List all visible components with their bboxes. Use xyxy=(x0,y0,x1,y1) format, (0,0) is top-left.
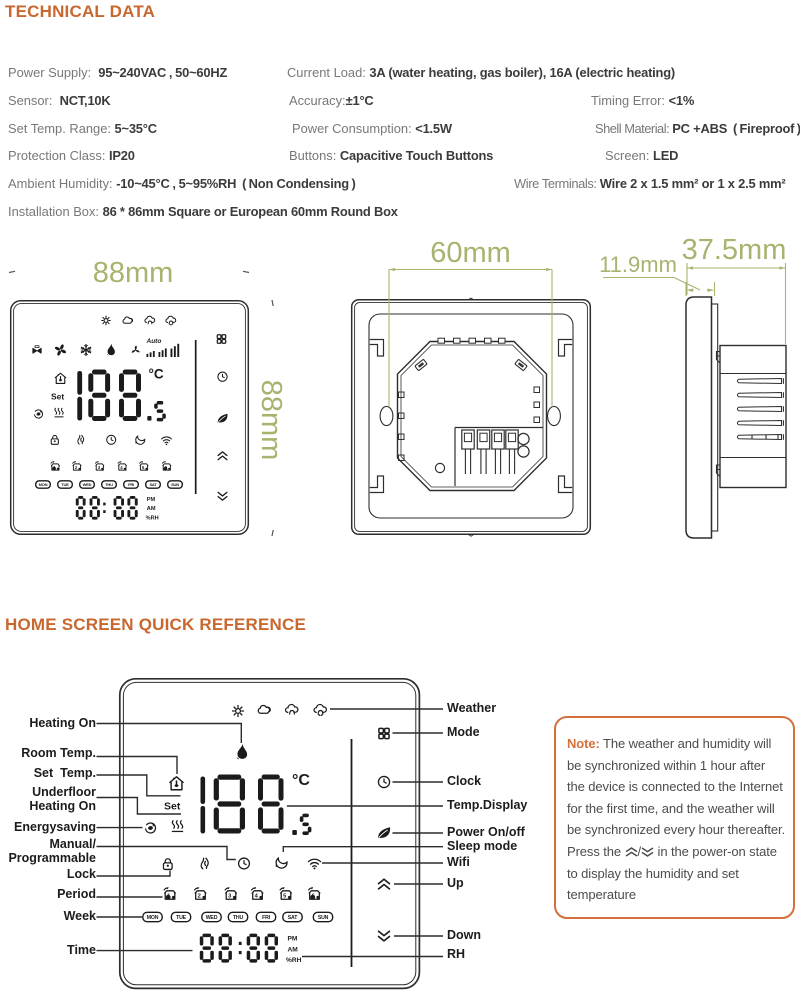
svg-text:88mm: 88mm xyxy=(255,380,287,461)
svg-text:AM: AM xyxy=(288,947,299,954)
svg-text:60mm: 60mm xyxy=(430,237,511,269)
svg-text:AM: AM xyxy=(147,506,156,512)
svg-text:WED: WED xyxy=(83,482,92,487)
svg-text:37.5mm: 37.5mm xyxy=(682,234,787,266)
svg-text:%RH: %RH xyxy=(286,957,302,964)
svg-text:TUE: TUE xyxy=(61,482,69,487)
svg-text:°C: °C xyxy=(292,772,310,789)
svg-text:5: 5 xyxy=(142,465,145,470)
svg-text:PM: PM xyxy=(147,497,156,503)
svg-text:WED: WED xyxy=(206,915,218,921)
svg-text:PM: PM xyxy=(288,936,298,943)
svg-text:%RH: %RH xyxy=(146,516,159,522)
svg-text:Set: Set xyxy=(164,801,181,813)
svg-text:FRI: FRI xyxy=(262,915,271,921)
svg-text:MON: MON xyxy=(39,482,48,487)
svg-text:FRI: FRI xyxy=(128,482,134,487)
svg-text:THU: THU xyxy=(233,915,244,921)
svg-text:SUN: SUN xyxy=(318,915,329,921)
svg-text:MON: MON xyxy=(147,915,159,921)
svg-text:Auto: Auto xyxy=(146,338,162,345)
svg-text:2: 2 xyxy=(75,465,78,470)
svg-text:TUE: TUE xyxy=(176,915,187,921)
svg-text:SUN: SUN xyxy=(171,482,179,487)
svg-text:2: 2 xyxy=(198,894,201,900)
svg-text:SAT: SAT xyxy=(288,915,298,921)
svg-text:88mm: 88mm xyxy=(93,257,174,289)
svg-text:11.9mm: 11.9mm xyxy=(599,252,677,277)
svg-text:3: 3 xyxy=(98,465,101,470)
svg-text:THU: THU xyxy=(105,482,113,487)
svg-text:Set: Set xyxy=(51,392,64,402)
svg-text:4: 4 xyxy=(120,465,123,470)
svg-text:°C: °C xyxy=(149,367,164,382)
svg-text:SAT: SAT xyxy=(149,482,157,487)
